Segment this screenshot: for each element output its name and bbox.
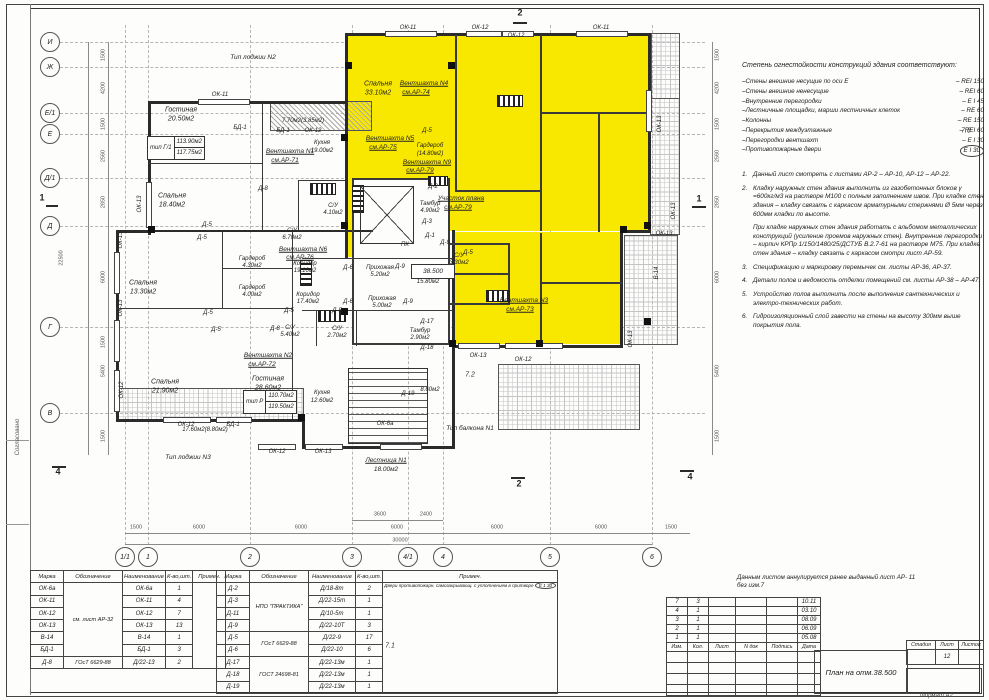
spec-mark: Д-9: [217, 620, 250, 632]
plan-label: 33.10м2: [365, 90, 391, 97]
plan-label: 2.70м2: [327, 333, 346, 339]
plan-label: ОК-13: [470, 353, 487, 359]
spec-count: 2: [166, 657, 193, 669]
signature-cell: [688, 663, 709, 674]
spec-mark: ОК-13: [31, 620, 64, 632]
dim-line: [352, 520, 443, 521]
signature-cell: [767, 674, 798, 685]
spec-count: 6: [356, 644, 383, 656]
plan-label: Коридор: [296, 292, 320, 298]
plan-label: Тип лоджии N2: [230, 55, 275, 62]
axis-bubble: 1: [138, 547, 158, 567]
window: [198, 99, 250, 105]
plan-label: 8.60м2: [420, 387, 439, 393]
partition: [298, 180, 299, 230]
spec-name: Д/22-13м: [309, 681, 356, 693]
revision-cell: 4: [667, 607, 688, 616]
column: [644, 318, 651, 325]
spec-header: Примеч.: [383, 571, 558, 583]
type-areas: 110.70м2119.50м2: [266, 391, 295, 413]
plan-label: Спальня: [158, 193, 186, 200]
axis-bubble: 1/1: [115, 547, 135, 567]
axis-bubble: Е: [40, 124, 60, 144]
plan-label: 18.40м2: [159, 202, 185, 209]
spec-designation: ГОСТ 24698-81: [250, 657, 309, 694]
partition: [448, 243, 510, 245]
plan-label: Д-9: [403, 299, 413, 305]
spec-count: 1: [166, 583, 193, 595]
revision-header: Лист: [709, 643, 736, 652]
spec-count: 13: [166, 620, 193, 632]
fire-resistance-item: –Внутренние перегородки– E I 45: [742, 97, 984, 107]
spec-name: Д/22-9: [309, 632, 356, 644]
spec-mark: Д-11: [217, 607, 250, 619]
signature-cell: [767, 652, 798, 663]
spec-name: В-14: [123, 632, 166, 644]
plan-label: Д-5: [202, 222, 212, 228]
column: [536, 340, 543, 347]
revision-cell: 08.09: [798, 616, 821, 625]
signature-cell: [709, 685, 736, 696]
signature-cell: [667, 674, 688, 685]
spec-name: БД-1: [123, 644, 166, 656]
spec-name: ОК-13: [123, 620, 166, 632]
revision-cell: 3: [688, 598, 709, 607]
plan-label: Д-18: [421, 345, 434, 351]
balcony-hatch: [498, 364, 640, 430]
spec-count: 3: [356, 620, 383, 632]
plan-label: Тип лоджии N3: [165, 455, 210, 462]
plan-label: Тип балкона N1: [446, 426, 494, 433]
plan-label: ОК-13: [137, 196, 143, 213]
plan-label: ОК-11: [593, 25, 609, 31]
spec-designation: ГОсТ 6629-88: [250, 632, 309, 657]
plan-label: см.АР-79: [406, 168, 434, 175]
plan-label: см.АР-76: [286, 255, 314, 262]
stage-cell: [959, 650, 984, 665]
dimension-text: 1500: [715, 117, 721, 131]
signature-cell: [709, 674, 736, 685]
window: [114, 320, 120, 362]
plan-label: ОК-12: [472, 25, 489, 31]
dim-line: [108, 42, 109, 455]
plan-label: ОК-13: [118, 300, 124, 317]
revision-cell: [709, 598, 736, 607]
lodge-hatch: [270, 101, 372, 131]
annul-note-line1: Данным листом аннулируется ранее выданны…: [737, 574, 987, 582]
revision-cell: [767, 625, 798, 634]
spec-mark: Д-19: [217, 681, 250, 693]
plan-label: Д-6: [343, 265, 353, 271]
signature-cell: [767, 685, 798, 696]
column: [449, 340, 456, 347]
plan-label: Д-8: [270, 326, 280, 332]
spec-table-windows: МаркаОбозначениеНаименованиеК-во,шт.Прим…: [30, 570, 226, 669]
signature-cell: [688, 685, 709, 696]
plan-label: Вентшахта N4: [400, 81, 448, 88]
elevation-mark: 38.500: [411, 264, 455, 279]
column: [448, 62, 455, 69]
apartment-type-box: тип Р110.70м2119.50м2: [243, 390, 297, 414]
column: [341, 222, 348, 229]
spec-mark: ОК-6а: [31, 583, 64, 595]
section-marker: 2: [516, 480, 521, 489]
fire-resistance-item: –Перегородки вентшахт– E I 30: [742, 136, 984, 146]
annul-note: Данным листом аннулируется ранее выданны…: [737, 574, 987, 590]
plan-label: 21.90м2: [152, 388, 178, 395]
plan-label: ПК: [401, 242, 409, 248]
dimension-text: 3600: [373, 512, 387, 518]
spec-name: ОК-11: [123, 595, 166, 607]
spec-header: Обозначение: [64, 571, 123, 583]
revision-cell: [709, 625, 736, 634]
section-marker: 4: [687, 473, 692, 482]
format-label: Формат А2: [920, 693, 953, 699]
signature-cell: [667, 652, 688, 663]
plan-label: Д-3: [422, 219, 432, 225]
plan-label: Вентшахта N5: [366, 136, 414, 143]
type-label: тип Р: [244, 391, 266, 413]
plan-label: Тамбур: [410, 328, 431, 334]
dimension-text: 4200: [715, 81, 721, 95]
dimension-text: 1500: [129, 525, 143, 531]
spec-header: К-во,шт.: [356, 571, 383, 583]
plan-label: см.АР-73: [506, 307, 534, 314]
spec-designation: НПО "ПРАКТИКА": [250, 583, 309, 632]
column: [341, 134, 348, 141]
plan-label: 15.80м2: [417, 279, 439, 285]
spec-name: Д/22-13м: [309, 669, 356, 681]
vent-shaft: [497, 95, 523, 107]
plan-label: Д-9: [440, 240, 450, 246]
spec-note: Двери противопожарн. самозакрывающ. с уп…: [383, 583, 558, 694]
revision-cell: [709, 607, 736, 616]
partition: [356, 310, 357, 346]
dimension-text: 5400: [101, 364, 107, 378]
stage-table: СтадияЛистЛистов12: [906, 640, 984, 665]
revision-header: Кол.: [688, 643, 709, 652]
dimension-text: 2850: [715, 195, 721, 209]
axis-bubble: И: [40, 32, 60, 52]
spec-count: 3: [166, 644, 193, 656]
column: [298, 414, 305, 421]
spec-mark: ОК-12: [31, 607, 64, 619]
plan-label: 5.40м2: [280, 332, 299, 338]
section-marker: 2: [517, 9, 522, 18]
revision-cell: 03.10: [798, 607, 821, 616]
general-note: 1.Данный лист смотреть с листами АР-2 – …: [742, 171, 984, 180]
axis-bubble: Е/1: [40, 103, 60, 123]
spec-mark: Д-6: [217, 644, 250, 656]
plan-label: 6.70м2: [282, 235, 301, 241]
plan-label: ОК-12: [119, 382, 125, 399]
spec-name: Д/22-15т: [309, 595, 356, 607]
dimension-text: 6000: [192, 525, 206, 531]
dim-line: [125, 533, 690, 534]
stair-flight: [348, 368, 428, 444]
plan-label: см.АР-74: [402, 90, 430, 97]
dimension-text: 6000: [715, 270, 721, 284]
dimension-text: 1500: [101, 335, 107, 349]
spec-mark: ОК-11: [31, 595, 64, 607]
plan-label: Д-5: [284, 308, 294, 314]
window: [385, 31, 437, 37]
spec-header: Наименование: [309, 571, 356, 583]
spec-count: 7: [166, 607, 193, 619]
column: [148, 226, 155, 233]
axis-bubble: Д: [40, 216, 60, 236]
plan-label: Участок плана: [438, 196, 484, 203]
axis-bubble: 4: [433, 547, 453, 567]
partition: [148, 163, 262, 164]
section-marker: 1: [39, 194, 44, 203]
wall: [620, 230, 623, 348]
plan-label: ОК-12: [178, 422, 195, 428]
drawing-title: План на отм.38.500: [814, 650, 908, 694]
plan-label: БД-1: [226, 422, 239, 428]
drawing-sheet: Согласовано ИЖЕ/1ЕД/1ДГВ1/11234/14561500…: [0, 0, 989, 700]
spec-header: Обозначение: [250, 571, 309, 583]
plan-label: 12.60м2: [311, 398, 333, 404]
revision-cell: 05.08: [798, 634, 821, 643]
spec-name: Д/10-5т: [309, 607, 356, 619]
partition: [455, 190, 542, 192]
section-marker-bar: [46, 205, 58, 207]
window: [646, 90, 652, 132]
plan-label: ОК-12: [508, 33, 525, 39]
plan-label: ОК-6а: [377, 421, 394, 427]
plan-label: Д-17: [421, 319, 434, 325]
partition: [352, 343, 450, 345]
spec-mark: Д-8: [31, 657, 64, 669]
section-marker-bar: [511, 477, 525, 479]
section-marker-bar: [692, 206, 706, 208]
type-areas: 113.90м2117.75м2: [175, 137, 204, 159]
spec-table-doors: МаркаОбозначениеНаименованиеК-во,шт.Прим…: [216, 570, 558, 694]
plan-label: С/У: [287, 228, 297, 234]
plan-label: Вентшахта N2: [244, 353, 292, 360]
sheet-number: 12: [936, 650, 959, 665]
spec-header: Марка: [217, 571, 250, 583]
revision-cell: [736, 598, 767, 607]
plan-label: Д-2: [428, 184, 438, 190]
revision-cell: [736, 616, 767, 625]
revision-cell: [767, 607, 798, 616]
dimension-text: 2560: [101, 149, 107, 163]
revision-cell: 3: [667, 616, 688, 625]
spec-count: 17: [356, 632, 383, 644]
spec-mark: Д-2: [217, 583, 250, 595]
dimension-text: 6000: [101, 270, 107, 284]
axis-bubble: В: [40, 403, 60, 423]
plan-label: С/У: [328, 203, 338, 209]
plan-label: 5.00м2: [372, 303, 391, 309]
plan-label: Д-5: [211, 327, 221, 333]
section-marker-bar: [52, 466, 66, 468]
plan-label: ОК-11: [212, 92, 228, 98]
general-note: 6.Гидроизоляционный слой завести на стен…: [742, 313, 984, 330]
partition: [540, 112, 650, 114]
spec-header: Марка: [31, 571, 64, 583]
revision-header: Подпись: [767, 643, 798, 652]
signature-cell: [688, 652, 709, 663]
fire-resistance-item: –Лестничные площадки, марши лестничных к…: [742, 106, 984, 116]
revision-cell: [709, 634, 736, 643]
grid-axis-line: [125, 25, 126, 545]
dimension-text: 6000: [594, 525, 608, 531]
spec-mark: Д-5: [217, 632, 250, 644]
plan-label: ОК-12: [269, 449, 286, 455]
plan-label: Д-19: [402, 391, 415, 397]
wall: [648, 33, 651, 233]
wall: [452, 345, 455, 449]
plan-label: Вентшахта N1: [266, 149, 314, 156]
section-marker-bar: [513, 22, 527, 24]
spec-name: Д/22-10: [309, 644, 356, 656]
highlighted-area: [454, 232, 620, 344]
signature-cell: [709, 663, 736, 674]
spec-count: 1: [356, 607, 383, 619]
partition: [316, 310, 317, 346]
general-note: 5.Устройство полов выполнить после выпол…: [742, 291, 984, 308]
plan-label: ОК-11: [400, 25, 416, 31]
fire-resistance-item: –Перекрытия междуэтажные– REI 60: [742, 126, 984, 136]
axis-bubble: 3: [342, 547, 362, 567]
plan-label: Гардероб: [239, 256, 265, 262]
window: [576, 31, 628, 37]
revision-cell: 1: [688, 634, 709, 643]
spec-mark: Д-3: [217, 595, 250, 607]
partition: [222, 232, 223, 308]
spec-count: 1: [356, 669, 383, 681]
plan-label: 13.30м2: [130, 289, 156, 296]
revision-cell: [767, 634, 798, 643]
partition: [298, 180, 345, 181]
revision-cell: 1: [667, 634, 688, 643]
revision-cell: 7: [667, 598, 688, 607]
dimension-text: 6000: [390, 525, 404, 531]
fire-resistance-item: –Противопожарные двериE I 30: [742, 145, 984, 157]
partition: [540, 35, 542, 231]
stage-header: Листов: [959, 641, 984, 650]
plan-label: Гостиная: [252, 376, 284, 383]
dimension-text: 2560: [715, 149, 721, 163]
plan-label: Лестница N1: [365, 458, 406, 465]
dimension-total: 30000: [391, 538, 408, 544]
dimension-text: 1500: [101, 117, 107, 131]
plan-label: Гостиная: [165, 107, 197, 114]
partition: [302, 258, 452, 259]
partition: [448, 273, 508, 275]
axis-bubble: 5: [540, 547, 560, 567]
dimension-text: 1500: [715, 429, 721, 443]
window: [114, 252, 120, 294]
dimension-text: 6000: [294, 525, 308, 531]
balcony-hatch: [624, 235, 678, 345]
plan-label: 7.70м2(3.85м2): [282, 118, 324, 124]
dim-line: [88, 42, 89, 455]
stage-cell: [907, 650, 936, 665]
general-notes-list: 1.Данный лист смотреть с листами АР-2 – …: [742, 171, 984, 331]
dimension-text: 2850: [101, 195, 107, 209]
plan-label: Д-8: [258, 186, 268, 192]
window: [466, 31, 502, 37]
signature-cell: [736, 663, 767, 674]
plan-label: Спальня: [129, 280, 157, 287]
plan-label: С/У: [285, 325, 295, 331]
plan-label: ОК-13: [656, 231, 673, 237]
plan-label: см.АР-71: [271, 158, 299, 165]
spec-count: 1: [166, 632, 193, 644]
signature-cell: [736, 652, 767, 663]
partition: [116, 308, 292, 309]
plan-label: С/У: [332, 326, 342, 332]
fire-resistance-item: –Колонны– RE 150: [742, 116, 984, 126]
partition: [540, 282, 622, 284]
spec-count: 1: [356, 681, 383, 693]
axis-bubble: Ж: [40, 57, 60, 77]
stage-header: Лист: [936, 641, 959, 650]
window: [458, 343, 500, 349]
general-note: При кладке наружных стен здания работать…: [742, 224, 984, 259]
revision-cell: [767, 598, 798, 607]
plan-label: Спальня: [364, 81, 392, 88]
dimension-text: 1500: [664, 525, 678, 531]
spec-mark: БД-1: [31, 644, 64, 656]
plan-label: 4.10м2: [323, 210, 342, 216]
plan-label: БД-1: [233, 125, 246, 131]
signature-cell: [709, 652, 736, 663]
plan-label: 19.10м2: [294, 268, 316, 274]
axis-bubble: Д/1: [40, 168, 60, 188]
plan-label: 2.90м2: [410, 335, 429, 341]
spec-name: Д/18-8т: [309, 583, 356, 595]
spec-name: Д/22-10Т: [309, 620, 356, 632]
wall: [452, 230, 455, 348]
spec-name: Д/22-13м: [309, 657, 356, 669]
signature-cell: [736, 685, 767, 696]
dim-line: [712, 42, 713, 455]
revision-cell: 1: [688, 607, 709, 616]
spec-designation: см. лист АР-32: [64, 583, 123, 657]
column: [620, 226, 627, 233]
revision-cell: 06.09: [798, 625, 821, 634]
spec-header: Наименование: [123, 571, 166, 583]
general-note: 3.Спецификацию и маркировку перемычек см…: [742, 264, 984, 273]
signature-cell: [667, 663, 688, 674]
plan-label: Кухня: [314, 390, 330, 396]
plan-label: Д-5: [203, 310, 213, 316]
dimension-text: 1500: [101, 429, 107, 443]
signature-cell: [736, 674, 767, 685]
dimension-total: 22500: [59, 249, 65, 266]
column: [644, 222, 651, 229]
plan-label: 4.90м2: [420, 208, 439, 214]
section-marker: 1: [696, 195, 701, 204]
plan-label: ОК-13: [671, 203, 677, 220]
dim-line: [125, 544, 652, 545]
revision-cell: [709, 616, 736, 625]
apartment-type-box: тип Г/1113.90м2117.75м2: [147, 136, 205, 160]
revision-cell: 1: [688, 616, 709, 625]
plan-label: Вентшахта N6: [279, 247, 327, 254]
section-marker-bar: [680, 470, 694, 472]
spec-count: 2: [356, 583, 383, 595]
plan-label: Д-5: [422, 128, 432, 134]
general-note: 4.Детали полов и ведомость отделки помещ…: [742, 277, 984, 286]
axis-bubble: Г: [40, 317, 60, 337]
signature-cell: [667, 685, 688, 696]
